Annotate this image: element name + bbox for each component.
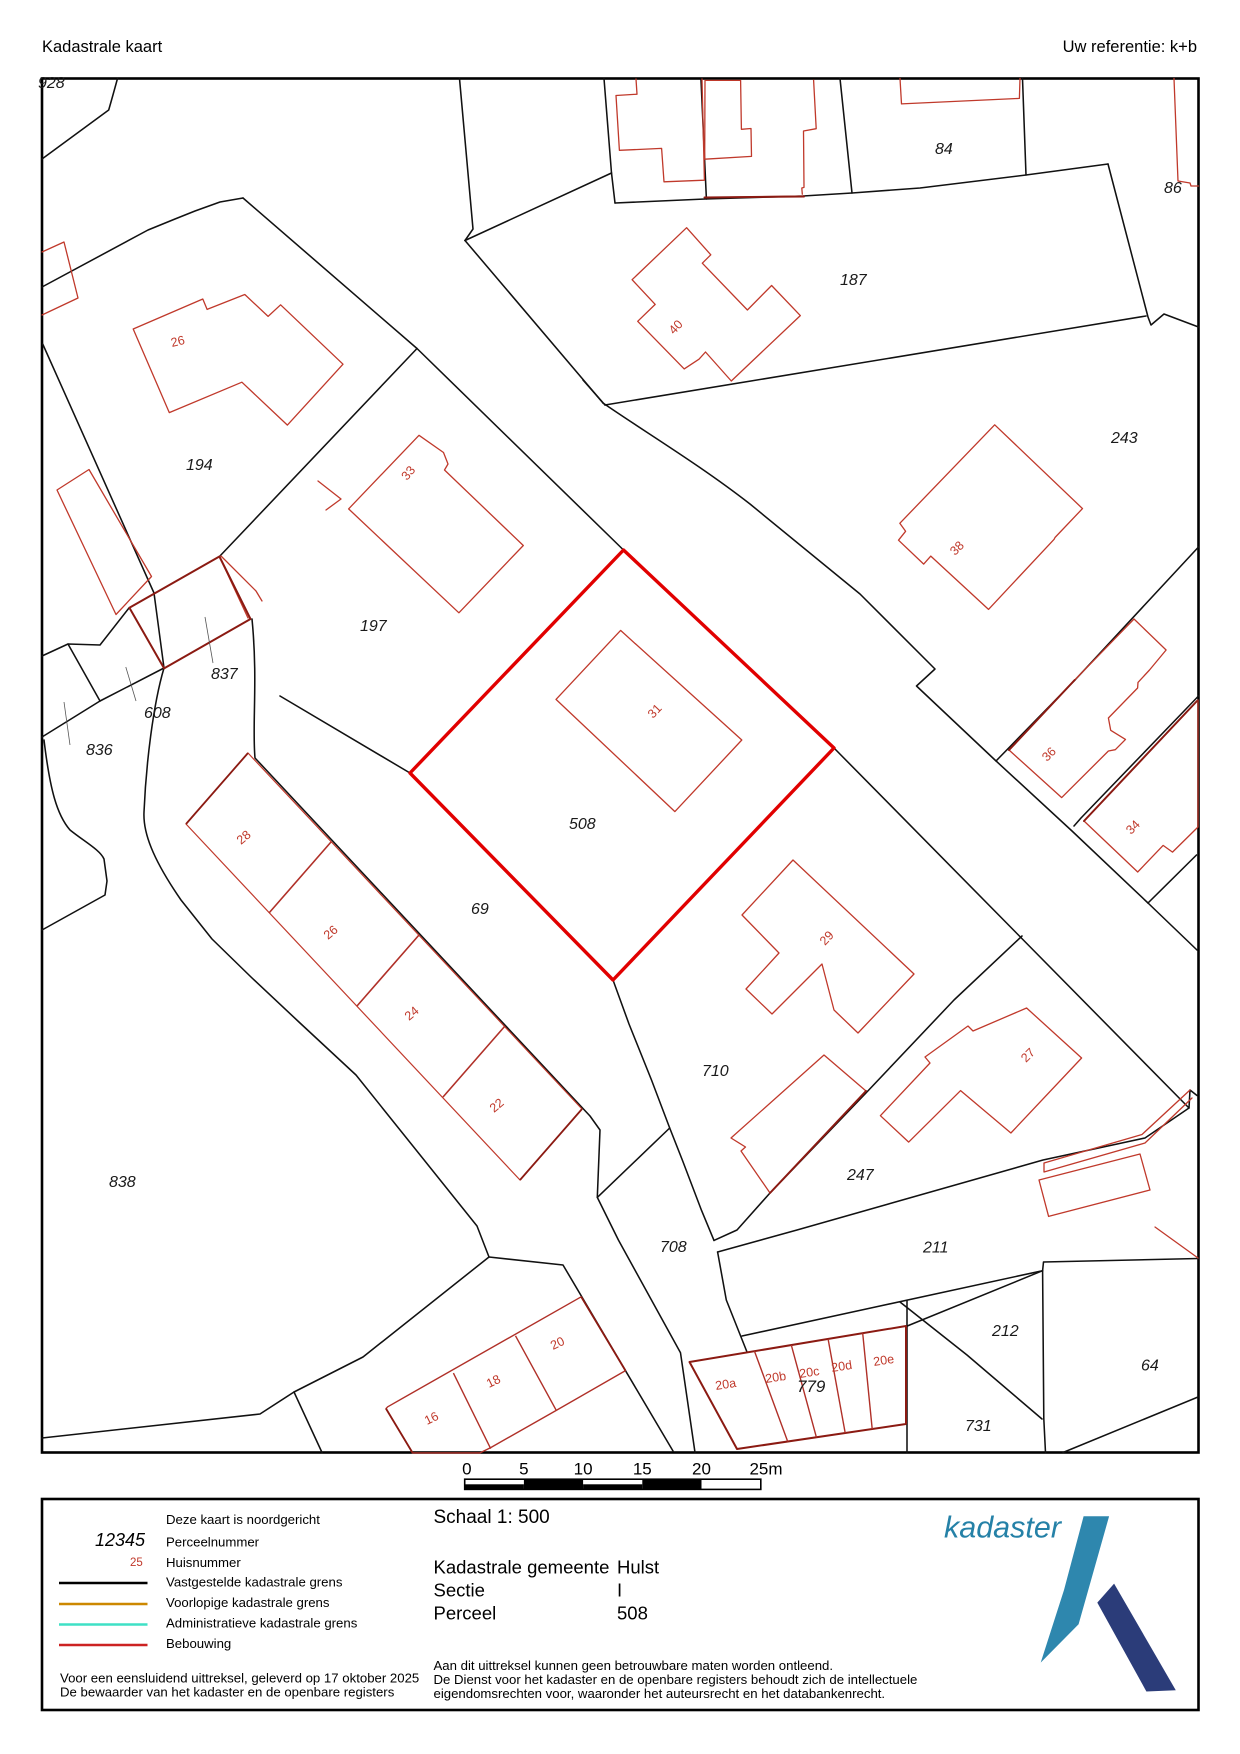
svg-text:710: 710 bbox=[702, 1063, 729, 1080]
svg-text:Bebouwing: Bebouwing bbox=[166, 1636, 231, 1651]
svg-text:928: 928 bbox=[38, 75, 65, 92]
svg-text:I: I bbox=[617, 1580, 622, 1601]
svg-text:15: 15 bbox=[633, 1460, 652, 1479]
svg-text:Hulst: Hulst bbox=[617, 1557, 659, 1578]
svg-text:Voorlopige kadastrale grens: Voorlopige kadastrale grens bbox=[166, 1595, 330, 1610]
svg-text:Huisnummer: Huisnummer bbox=[166, 1555, 241, 1570]
svg-text:25: 25 bbox=[130, 1557, 143, 1569]
svg-text:508: 508 bbox=[617, 1603, 648, 1624]
svg-text:197: 197 bbox=[360, 618, 388, 635]
svg-text:212: 212 bbox=[991, 1323, 1019, 1340]
svg-text:838: 838 bbox=[109, 1174, 136, 1191]
svg-text:Kadastrale kaart: Kadastrale kaart bbox=[42, 38, 163, 56]
svg-text:211: 211 bbox=[922, 1240, 949, 1257]
svg-text:243: 243 bbox=[1110, 430, 1138, 447]
svg-text:84: 84 bbox=[935, 141, 953, 158]
svg-text:Schaal 1: 500: Schaal 1: 500 bbox=[434, 1507, 550, 1528]
svg-text:eigendomsrechten voor, waarond: eigendomsrechten voor, waaronder het aut… bbox=[434, 1686, 886, 1701]
svg-text:Perceelnummer: Perceelnummer bbox=[166, 1535, 260, 1550]
svg-text:Deze kaart is noordgericht: Deze kaart is noordgericht bbox=[166, 1512, 320, 1527]
svg-text:247: 247 bbox=[846, 1167, 875, 1184]
svg-text:608: 608 bbox=[144, 705, 171, 722]
svg-text:20: 20 bbox=[692, 1460, 711, 1479]
svg-text:De Dienst voor het kadaster en: De Dienst voor het kadaster en de openba… bbox=[434, 1672, 918, 1687]
svg-text:508: 508 bbox=[569, 816, 596, 833]
svg-text:Voor een eensluidend uittrekse: Voor een eensluidend uittreksel, gelever… bbox=[60, 1671, 419, 1686]
svg-text:Administratieve kadastrale gre: Administratieve kadastrale grens bbox=[166, 1616, 358, 1631]
svg-text:86: 86 bbox=[1164, 180, 1182, 197]
svg-text:187: 187 bbox=[840, 272, 868, 289]
svg-text:kadaster: kadaster bbox=[944, 1511, 1063, 1545]
svg-text:Uw referentie: k+b: Uw referentie: k+b bbox=[1063, 38, 1197, 56]
svg-text:25m: 25m bbox=[749, 1460, 782, 1479]
svg-text:69: 69 bbox=[471, 901, 489, 918]
svg-text:731: 731 bbox=[965, 1418, 992, 1435]
svg-text:5: 5 bbox=[519, 1460, 528, 1479]
svg-text:708: 708 bbox=[660, 1239, 687, 1256]
svg-text:Aan dit uittreksel kunnen geen: Aan dit uittreksel kunnen geen betrouwba… bbox=[434, 1658, 834, 1673]
svg-text:194: 194 bbox=[186, 457, 213, 474]
svg-text:10: 10 bbox=[574, 1460, 593, 1479]
svg-text:12345: 12345 bbox=[95, 1530, 146, 1550]
svg-text:836: 836 bbox=[86, 742, 113, 759]
svg-text:Kadastrale gemeente: Kadastrale gemeente bbox=[434, 1557, 610, 1578]
svg-text:Perceel: Perceel bbox=[434, 1603, 497, 1624]
svg-text:837: 837 bbox=[211, 666, 239, 683]
svg-text:64: 64 bbox=[1141, 1358, 1159, 1375]
svg-text:Vastgestelde kadastrale grens: Vastgestelde kadastrale grens bbox=[166, 1575, 343, 1590]
svg-text:0: 0 bbox=[462, 1460, 471, 1479]
svg-text:Sectie: Sectie bbox=[434, 1580, 485, 1601]
svg-text:De bewaarder van het kadaster: De bewaarder van het kadaster en de open… bbox=[60, 1685, 395, 1700]
